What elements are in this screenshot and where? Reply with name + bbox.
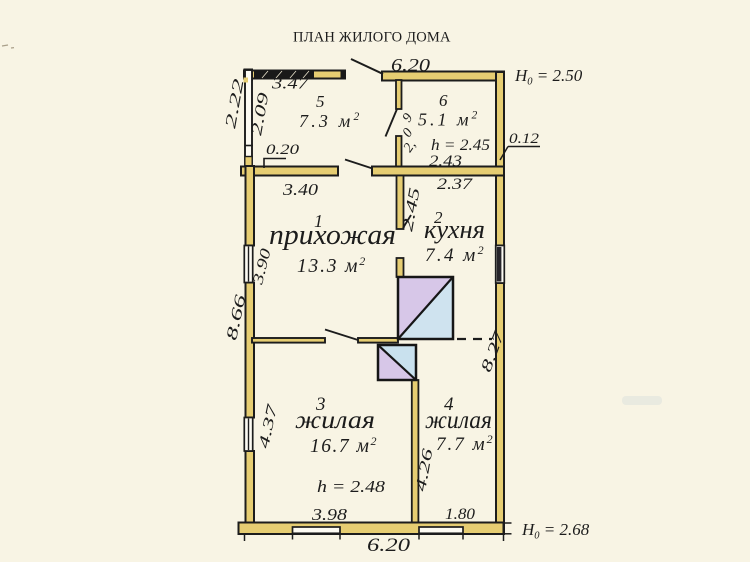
svg-text:1.80: 1.80 <box>445 506 475 523</box>
svg-text:ПЛАН ЖИЛОГО ДОМА: ПЛАН ЖИЛОГО ДОМА <box>293 30 451 46</box>
svg-text:прихожая: прихожая <box>269 220 396 251</box>
svg-text:5.1 м2: 5.1 м2 <box>418 110 480 130</box>
svg-text:3.98: 3.98 <box>311 505 348 524</box>
svg-text:7.7 м2: 7.7 м2 <box>436 432 495 455</box>
svg-text:2.37: 2.37 <box>437 176 473 193</box>
svg-text:3.47: 3.47 <box>271 76 310 93</box>
svg-text:h = 2.45: h = 2.45 <box>431 137 490 154</box>
svg-text:5: 5 <box>316 92 325 111</box>
svg-text:H0 = 2.68: H0 = 2.68 <box>521 520 590 542</box>
svg-text:6.20: 6.20 <box>391 55 430 75</box>
svg-text:16.7 м2: 16.7 м2 <box>310 434 378 457</box>
svg-text:2.43: 2.43 <box>429 153 462 170</box>
svg-text:0.20: 0.20 <box>266 142 300 158</box>
svg-text:жилая: жилая <box>295 407 375 434</box>
svg-text:7.3 м2: 7.3 м2 <box>299 111 362 131</box>
svg-text:7.4 м2: 7.4 м2 <box>425 243 486 266</box>
svg-text:6.20: 6.20 <box>367 535 411 556</box>
svg-text:жилая: жилая <box>425 407 492 434</box>
svg-text:h = 2.48: h = 2.48 <box>317 477 386 496</box>
svg-text:кухня: кухня <box>424 215 485 244</box>
svg-text:6: 6 <box>439 91 448 110</box>
svg-text:0.12: 0.12 <box>509 131 539 147</box>
svg-text:3.40: 3.40 <box>282 180 319 199</box>
svg-text:H0 = 2.50: H0 = 2.50 <box>514 66 583 88</box>
svg-text:13.3 м2: 13.3 м2 <box>297 254 367 277</box>
